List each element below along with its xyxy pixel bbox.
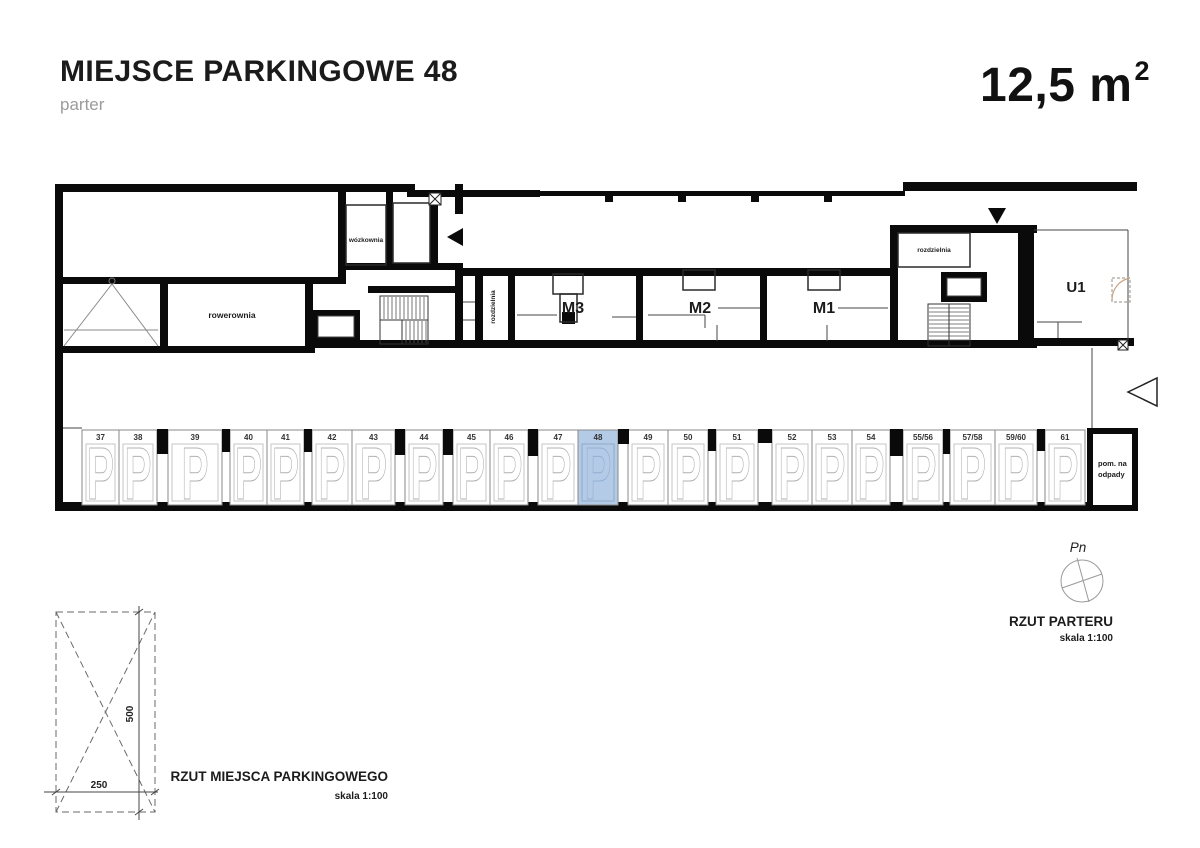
entrance-arrow-down-icon <box>988 208 1006 224</box>
parking-space-46: 46P <box>490 430 528 515</box>
parking-marker: P <box>496 432 523 515</box>
parking-space-53: 53P <box>812 430 852 515</box>
parking-marker: P <box>235 432 262 515</box>
parking-marker: P <box>87 432 114 515</box>
parking-marker: P <box>959 432 986 515</box>
parking-marker: P <box>1052 432 1079 515</box>
parking-marker: P <box>779 432 806 515</box>
room-label-waste-1: pom. na <box>1098 459 1128 468</box>
parking-marker: P <box>724 432 751 515</box>
parking-space-59-60: 59/60P <box>995 430 1037 515</box>
parking-space-57-58: 57/58P <box>950 430 995 515</box>
parking-marker: P <box>272 432 299 515</box>
stall-caption-title: RZUT MIEJSCA PARKINGOWEGO <box>170 769 388 784</box>
room-label-rozdzielnia-left: rozdzielnia <box>490 290 497 324</box>
room-label-m3: M3 <box>562 300 584 317</box>
parking-marker: P <box>910 432 937 515</box>
room-label-u1: U1 <box>1066 279 1085 296</box>
parking-space-44: 44P <box>405 430 443 515</box>
parking-marker: P <box>675 432 702 515</box>
parking-space-48: 48P <box>578 430 618 515</box>
parking-marker: P <box>458 432 485 515</box>
parking-marker: P <box>125 432 152 515</box>
stall-caption-scale: skala 1:100 <box>335 791 389 802</box>
parking-marker: P <box>319 432 346 515</box>
room-label-rozdzielnia-right: rozdzielnia <box>917 247 951 254</box>
parking-space-54: 54P <box>852 430 890 515</box>
parking-space-42: 42P <box>312 430 352 515</box>
parking-space-41: 41P <box>267 430 304 515</box>
parking-marker: P <box>411 432 438 515</box>
parking-space-55-56: 55/56P <box>903 430 943 515</box>
stall-detail-drawing: 500 250 RZUT MIEJSCA PARKINGOWEGO skala … <box>44 606 388 820</box>
parking-space-38: 38P <box>119 430 157 515</box>
room-label-m1: M1 <box>813 300 835 317</box>
parking-marker: P <box>858 432 885 515</box>
floor-plan-drawing: 37P38P39P40P41P42P43P44P45P46P47P48P49P5… <box>0 0 1200 848</box>
room-label-rowerownia: rowerownia <box>208 310 256 320</box>
parking-space-52: 52P <box>772 430 812 515</box>
parking-marker: P <box>545 432 572 515</box>
parking-row: 37P38P39P40P41P42P43P44P45P46P47P48P49P5… <box>82 430 1085 515</box>
interior-partitions <box>346 203 970 322</box>
entrance-arrow-left-icon <box>447 228 463 246</box>
driveway-arrow-icon <box>1128 378 1157 406</box>
parking-space-43: 43P <box>352 430 395 515</box>
parking-space-47: 47P <box>538 430 578 515</box>
elevator-left <box>312 310 360 344</box>
plan-caption-title: RZUT PARTERU <box>1009 614 1113 629</box>
parking-space-61: 61P <box>1045 430 1085 515</box>
page-subtitle: parter <box>60 95 104 115</box>
interior-details <box>63 230 1128 428</box>
plan-caption: RZUT PARTERU skala 1:100 <box>1009 614 1113 644</box>
area-value: 12,5 m2 <box>980 58 1148 113</box>
door-swing <box>1112 278 1130 302</box>
parking-marker: P <box>819 432 846 515</box>
parking-space-49: 49P <box>628 430 668 515</box>
parking-marker: P <box>182 432 209 515</box>
page-title: MIEJSCE PARKINGOWE 48 <box>60 55 458 89</box>
elevator-right <box>941 272 987 302</box>
parking-space-45: 45P <box>453 430 490 515</box>
staircase-left <box>380 296 428 344</box>
dimension-width: 250 <box>91 780 108 791</box>
floor-plan-sheet: MIEJSCE PARKINGOWE 48 parter 12,5 m2 <box>0 0 1200 848</box>
room-label-wozkownia: wózkownia <box>348 237 384 244</box>
plan-caption-scale: skala 1:100 <box>1060 633 1114 644</box>
parking-space-51: 51P <box>716 430 758 515</box>
ramp-marking <box>64 278 158 346</box>
room-label-m2: M2 <box>689 300 711 317</box>
staircase-right <box>928 304 970 346</box>
compass-north-label: Pn <box>1070 540 1087 555</box>
parking-marker: P <box>585 432 612 515</box>
parking-marker: P <box>1003 432 1030 515</box>
parking-space-39: 39P <box>168 430 222 515</box>
parking-space-50: 50P <box>668 430 708 515</box>
dimension-depth: 500 <box>125 705 136 722</box>
parking-space-40: 40P <box>230 430 267 515</box>
parking-marker: P <box>635 432 662 515</box>
parking-marker: P <box>360 432 387 515</box>
parking-space-37: 37P <box>82 430 119 515</box>
compass: Pn <box>1061 540 1103 602</box>
room-label-waste-2: odpady <box>1098 470 1125 479</box>
